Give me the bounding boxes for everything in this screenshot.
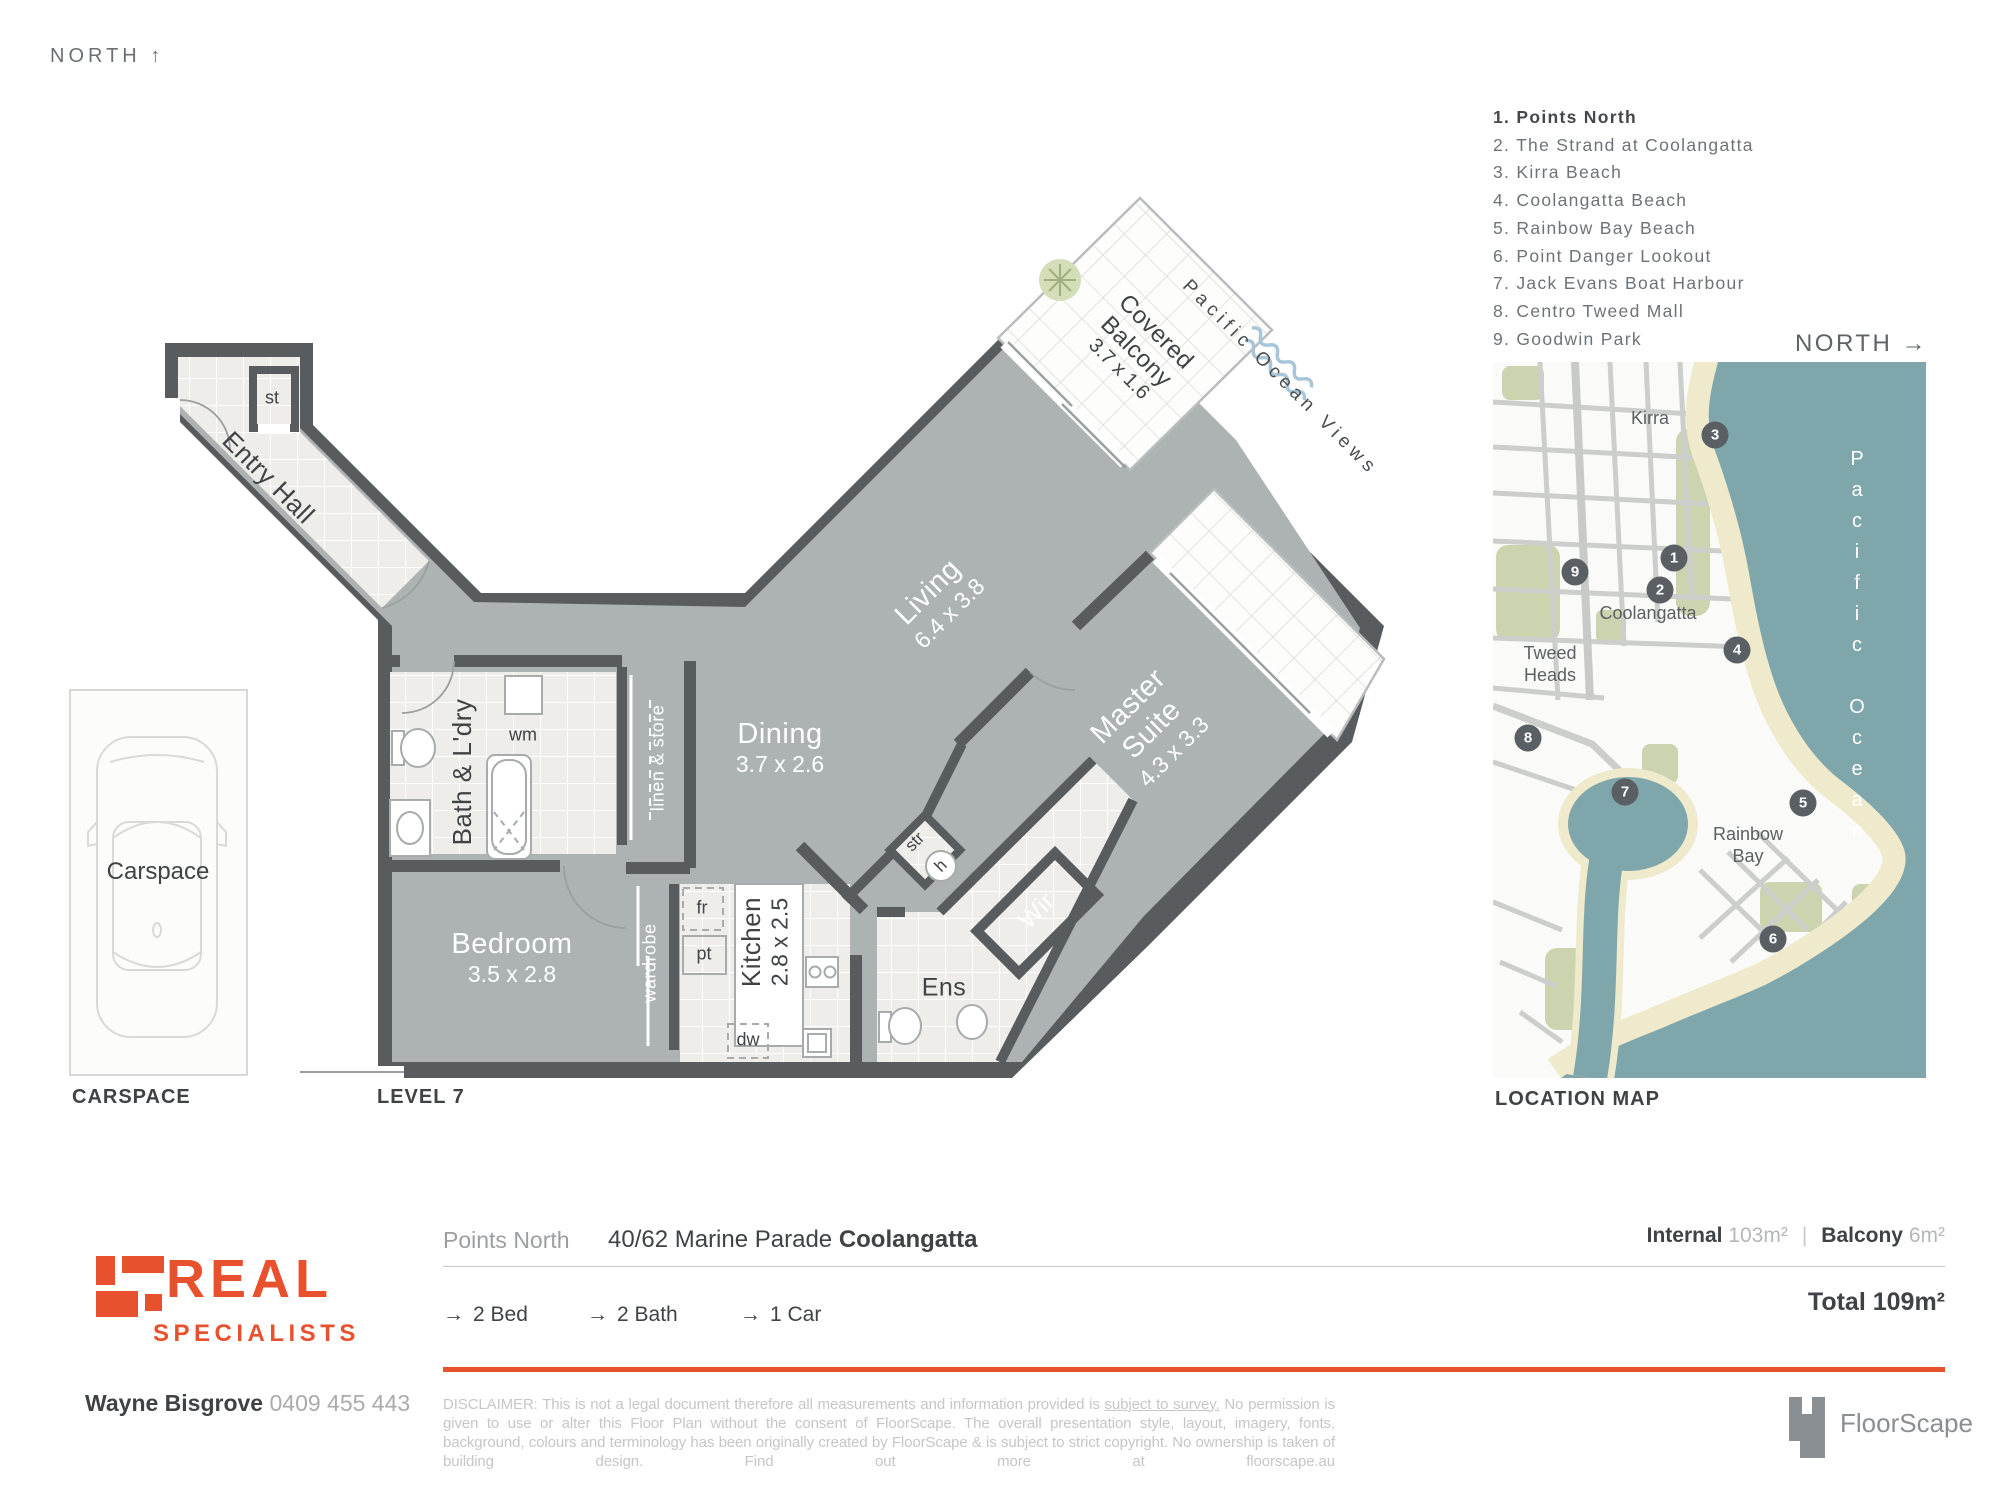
north-indicator-top: NORTH ↑ [50, 45, 164, 68]
ensuite-label: Ens [922, 974, 967, 1003]
pantry-label: pt [696, 944, 711, 965]
feature-cars: →1 Car [740, 1303, 821, 1327]
poi-item: 8. Centro Tweed Mall [1493, 298, 1754, 326]
poi-item: 3. Kirra Beach [1493, 159, 1754, 187]
brand-real: REAL [166, 1248, 333, 1310]
footer-accent-bar [443, 1367, 1945, 1372]
location-map-caption: LOCATION MAP [1495, 1088, 1660, 1111]
level-caption: LEVEL 7 [377, 1086, 465, 1109]
north-up-arrow-icon: ↑ [150, 45, 164, 67]
kitchen-label: Kitchen [737, 897, 767, 987]
linen-store-label: linen & store [648, 705, 669, 812]
bedroom-window [300, 1066, 404, 1078]
map-north-right-arrow-icon: → [1902, 330, 1929, 357]
dining-label: Dining 3.7 x 2.6 [736, 718, 824, 778]
map-marker-9: 9 [1562, 559, 1589, 586]
poi-list: 1. Points North 2. The Strand at Coolang… [1493, 104, 1754, 353]
footer-areas: Internal 103m²|Balcony 6m² [1647, 1224, 1945, 1248]
car-arrow-icon: → [740, 1303, 761, 1326]
map-label-coolangatta: Coolangatta [1599, 602, 1696, 624]
dishwasher-label: dw [736, 1030, 759, 1051]
disclaimer: DISCLAIMER: This is not a legal document… [443, 1395, 1335, 1471]
floorplan-page: NORTH ↑ 1. Points North 2. The Strand at… [0, 0, 2000, 1500]
map-marker-4: 4 [1724, 637, 1751, 664]
poi-item: 7. Jack Evans Boat Harbour [1493, 270, 1754, 298]
poi-item: 1. Points North [1493, 104, 1754, 132]
footer-plan-name: Points North [443, 1227, 570, 1254]
map-marker-1: 1 [1661, 545, 1688, 572]
kitchen-dims-label: 2.8 x 2.5 [767, 898, 794, 986]
bath-laundry-label: Bath & L'dry [448, 699, 478, 846]
map-marker-7: 7 [1612, 779, 1639, 806]
poi-item: 6. Point Danger Lookout [1493, 243, 1754, 271]
map-label-rainbow-bay: Rainbow Bay [1713, 823, 1783, 867]
carspace-caption: CARSPACE [72, 1086, 191, 1109]
map-marker-5: 5 [1790, 790, 1817, 817]
floorscape-wordmark: FloorScape [1840, 1408, 1973, 1439]
bath-arrow-icon: → [587, 1303, 608, 1326]
carspace-label: Carspace [107, 858, 210, 886]
footer-divider [443, 1266, 1945, 1267]
agent-info: Wayne Bisgrove 0409 455 443 [85, 1390, 410, 1417]
wardrobe-label: wardrobe [640, 923, 661, 1002]
map-north-label: NORTH [1795, 330, 1892, 357]
floorscape-logo-icon [1789, 1397, 1825, 1458]
bed-arrow-icon: → [443, 1303, 464, 1326]
map-marker-8: 8 [1515, 725, 1542, 752]
plant-icon [1039, 259, 1081, 301]
poi-item: 9. Goodwin Park [1493, 326, 1754, 354]
st-label: st [265, 388, 279, 409]
poi-item: 5. Rainbow Bay Beach [1493, 215, 1754, 243]
bedroom-label: Bedroom 3.5 x 2.8 [451, 928, 572, 988]
feature-beds: →2 Bed [443, 1303, 528, 1327]
map-marker-6: 6 [1760, 926, 1787, 953]
map-marker-3: 3 [1702, 422, 1729, 449]
map-label-pacific-ocean: Pacific Ocean [1845, 448, 1868, 851]
poi-item: 2. The Strand at Coolangatta [1493, 132, 1754, 160]
footer-total-area: Total 109m² [1808, 1288, 1945, 1317]
poi-item: 4. Coolangatta Beach [1493, 187, 1754, 215]
wm-label: wm [509, 725, 537, 746]
fridge-label: fr [697, 898, 708, 919]
map-label-tweed: Tweed Heads [1523, 642, 1576, 686]
north-label: NORTH [50, 45, 141, 67]
feature-baths: →2 Bath [587, 1303, 678, 1327]
map-marker-2: 2 [1647, 577, 1674, 604]
real-specialists-logo-icon [96, 1256, 164, 1317]
north-indicator-map: NORTH → [1795, 330, 1928, 358]
footer-address: 40/62 Marine Parade Coolangatta [608, 1226, 977, 1254]
map-label-kirra: Kirra [1631, 407, 1669, 429]
brand-specialists: SPECIALISTS [153, 1320, 360, 1348]
